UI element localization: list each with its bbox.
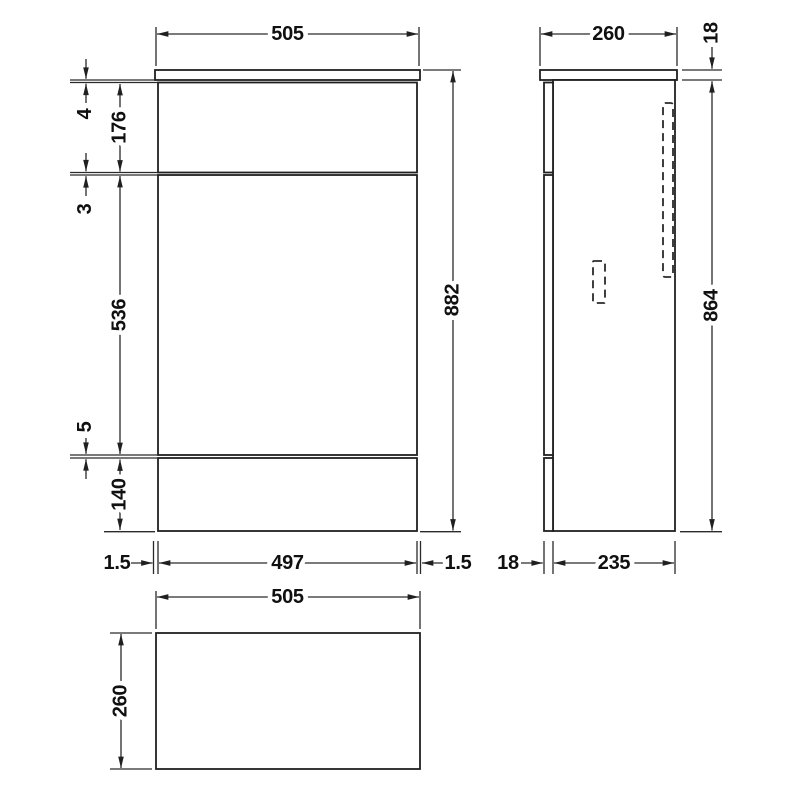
dimension-plan-width: 505 [156,586,420,629]
side-front-panel-middle [544,175,553,455]
plan-view: 505 260 [110,586,421,769]
side-front-panel-plinth [544,458,553,531]
side-worktop [540,70,677,80]
dimension-front-bottom-chain: 1.5 497 1.5 [104,541,472,574]
front-upper-panel [158,83,417,173]
dimension-side-worktop-thickness: 18 [682,22,723,80]
dim-label-side-panel-thickness: 18 [497,552,519,574]
dim-label-side-worktop-thickness: 18 [701,22,723,44]
dim-label-front-carcass-width: 497 [271,552,304,574]
dim-label-front-height: 882 [442,284,464,317]
dim-label-side-depth: 260 [592,23,625,45]
dimension-side-depth: 260 [540,23,677,66]
plan-worktop-outline [156,633,420,769]
dim-label-front-right-overhang: 1.5 [445,552,472,574]
dim-label-plan-depth: 260 [110,685,132,718]
front-worktop [155,70,420,80]
dim-label-front-upper-panel: 176 [109,111,131,144]
dim-label-side-height: 864 [701,288,723,322]
dim-label-plan-width: 505 [271,586,304,608]
dim-label-front-lower-gap: 5 [74,421,96,432]
dim-label-front-left-overhang: 1.5 [104,552,131,574]
dimension-front-width: 505 [156,23,419,66]
dimension-front-height: 882 [420,70,464,532]
dim-label-front-upper-gap: 3 [74,203,96,214]
dim-label-front-width: 505 [271,23,304,45]
front-middle-panel [158,175,417,455]
front-view: 505 882 4 176 [70,23,472,574]
dimension-side-height: 864 [680,81,723,531]
side-carcass [553,80,675,531]
dim-label-side-carcass-depth: 235 [598,552,631,574]
dimension-front-left-chain: 4 176 3 536 5 140 [70,59,158,532]
technical-drawing-canvas: 505 882 4 176 [0,0,800,800]
side-view: 260 18 864 18 235 [497,22,722,574]
dim-label-front-plinth: 140 [109,478,131,511]
dimension-plan-depth: 260 [110,633,153,769]
dim-label-front-worktop-gap: 4 [74,107,96,119]
side-front-panel-upper [544,83,553,173]
front-plinth-panel [158,458,417,531]
technical-drawing-page: 505 882 4 176 [0,0,800,800]
dimension-side-bottom-chain: 18 235 [497,541,675,574]
dim-label-front-middle-panel: 536 [109,299,131,332]
